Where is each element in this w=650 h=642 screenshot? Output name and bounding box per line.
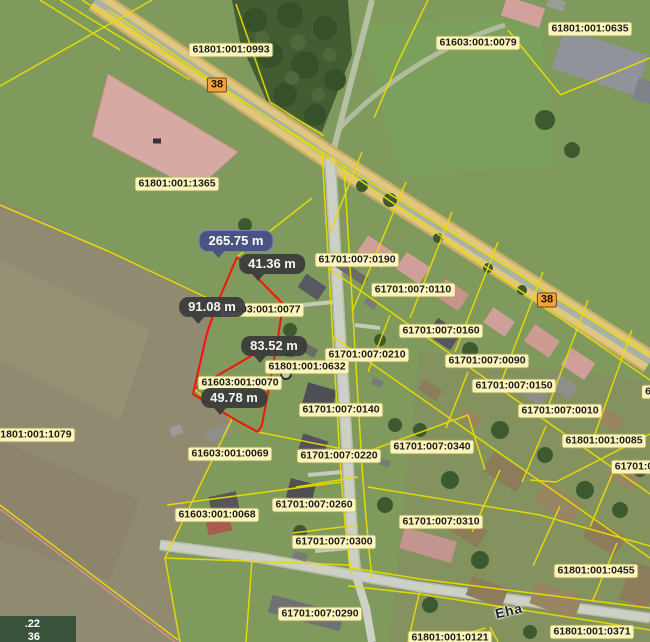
parcel-label: 61801:001:1079 bbox=[0, 429, 75, 442]
coordinate-line-1: .22 bbox=[0, 618, 40, 631]
parcel-label: 6 bbox=[642, 386, 650, 399]
parcel-label: 61701:007:0010 bbox=[518, 405, 601, 418]
parcel-label: 61801:001:0121 bbox=[408, 632, 491, 642]
parcel-label: 61801:001:0993 bbox=[189, 44, 272, 57]
parcel-label: 61603:001:0079 bbox=[436, 37, 519, 50]
measurement-label[interactable]: 91.08 m bbox=[179, 297, 245, 317]
parcel-label: 61603:001:0068 bbox=[175, 509, 258, 522]
parcel-label: 61701:0 bbox=[612, 461, 650, 474]
coordinate-line-2: 36 bbox=[0, 631, 40, 642]
survey-mark-icon bbox=[153, 139, 161, 144]
coordinate-readout: .22 36 bbox=[0, 616, 76, 642]
road-number-badge: 38 bbox=[537, 293, 557, 308]
parcel-label: 61801:001:0085 bbox=[562, 435, 645, 448]
parcel-label: 61701:007:0260 bbox=[272, 499, 355, 512]
parcel-label: 61701:007:0150 bbox=[472, 380, 555, 393]
road-number-badge: 38 bbox=[207, 78, 227, 93]
parcel-label: 61801:001:0635 bbox=[548, 23, 631, 36]
parcel-label: 61701:007:0110 bbox=[372, 284, 455, 297]
measurement-label[interactable]: 49.78 m bbox=[201, 388, 267, 408]
label-layer: 61801:001:099361603:001:007961801:001:06… bbox=[0, 0, 650, 642]
parcel-label: 61801:001:1365 bbox=[135, 178, 218, 191]
parcel-label: 61701:007:0160 bbox=[399, 325, 482, 338]
measurement-label[interactable]: 265.75 m bbox=[199, 230, 274, 252]
parcel-label: 61701:007:0310 bbox=[399, 516, 482, 529]
measurement-label[interactable]: 83.52 m bbox=[241, 336, 307, 356]
parcel-label: 61701:007:0340 bbox=[390, 441, 473, 454]
parcel-label: 61701:007:0090 bbox=[445, 355, 528, 368]
parcel-label: 61801:001:0632 bbox=[265, 361, 348, 374]
parcel-label: 61801:001:0371 bbox=[550, 626, 633, 639]
measurement-label[interactable]: 41.36 m bbox=[239, 254, 305, 274]
parcel-label: 61701:007:0290 bbox=[278, 608, 361, 621]
parcel-label: 61701:007:0190 bbox=[315, 254, 398, 267]
parcel-label: 61801:001:0455 bbox=[554, 565, 637, 578]
parcel-label: 61701:007:0140 bbox=[299, 404, 382, 417]
parcel-label: 61603:001:0069 bbox=[188, 448, 271, 461]
parcel-label: 61701:007:0220 bbox=[297, 450, 380, 463]
parcel-label: 61701:007:0300 bbox=[292, 536, 375, 549]
map-viewport[interactable]: 61801:001:099361603:001:007961801:001:06… bbox=[0, 0, 650, 642]
street-name-label: Eha bbox=[494, 601, 524, 622]
